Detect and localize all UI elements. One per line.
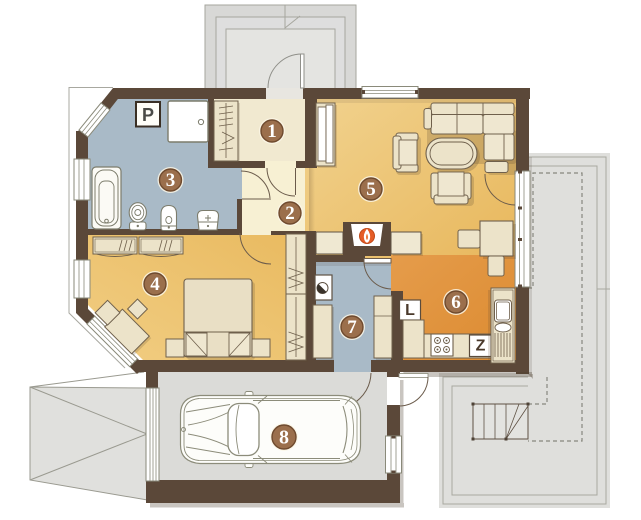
svg-text:3: 3 xyxy=(166,170,176,191)
svg-text:5: 5 xyxy=(366,179,376,200)
svg-text:2: 2 xyxy=(285,203,295,224)
svg-text:L: L xyxy=(405,302,415,319)
svg-text:Z: Z xyxy=(476,338,486,355)
svg-text:8: 8 xyxy=(279,427,289,449)
svg-text:P: P xyxy=(142,105,154,125)
svg-text:7: 7 xyxy=(347,317,357,338)
svg-text:1: 1 xyxy=(267,121,277,142)
svg-text:6: 6 xyxy=(451,292,461,313)
svg-text:4: 4 xyxy=(150,274,160,295)
